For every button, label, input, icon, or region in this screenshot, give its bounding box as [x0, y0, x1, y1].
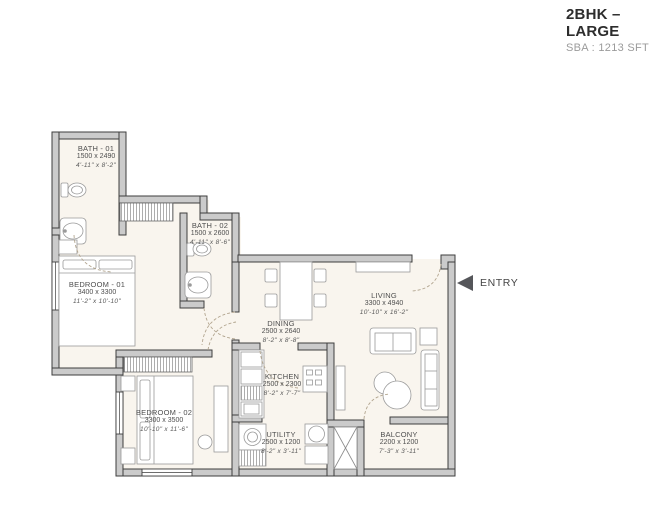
hob-icon: [303, 366, 327, 392]
nightstand-icon: [121, 376, 135, 391]
floorplan-drawing: [0, 0, 671, 526]
window-bedroom2-icon: [116, 392, 123, 434]
shaft-x-icon: [334, 427, 357, 469]
sideboard-icon: [356, 262, 410, 272]
entry-label: ENTRY: [480, 277, 518, 289]
floorplan-page: 2BHK – LARGE SBA : 1213 SFT: [0, 0, 671, 526]
utility-sink-icon: [305, 424, 328, 464]
chair-icon: [265, 269, 277, 282]
entry-arrow-icon: [457, 275, 473, 291]
bedroom2-wardrobe-hatch: [124, 357, 192, 372]
sofa-icon: [370, 328, 416, 354]
washbasin-icon: [185, 272, 211, 298]
desk-chair-icon: [198, 435, 212, 449]
corridor-wardrobe-hatch: [120, 203, 173, 221]
tall-unit-icon: [336, 366, 345, 410]
chair-icon: [265, 294, 277, 307]
side-table-icon: [420, 328, 437, 345]
nightstand-icon: [59, 240, 77, 254]
toilet-icon: [61, 183, 86, 197]
bed-icon: [137, 376, 193, 464]
chair-icon: [314, 294, 326, 307]
window-bedroom1-icon: [52, 262, 59, 310]
kitchen-counter-icon: [239, 350, 264, 418]
bed-icon: [59, 256, 135, 346]
window-bedroom2-bottom-icon: [142, 469, 192, 476]
chair-icon: [314, 269, 326, 282]
washing-machine-icon: [239, 424, 266, 466]
long-sofa-icon: [421, 350, 439, 410]
entry-marker: ENTRY: [457, 275, 518, 291]
desk-icon: [214, 386, 228, 452]
toilet-icon: [187, 242, 211, 256]
nightstand-icon: [121, 448, 135, 464]
